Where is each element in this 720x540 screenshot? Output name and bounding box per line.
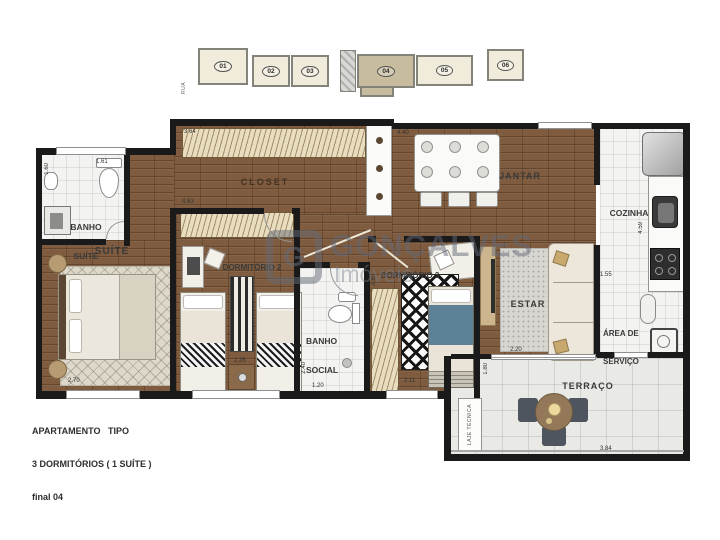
shower-drain (342, 358, 352, 368)
window-dorm3 (386, 390, 438, 399)
window-banho-suite (56, 147, 126, 155)
unit-number-badge: 06 (497, 60, 514, 71)
key-plan-unit-03: 03 (291, 55, 329, 87)
place-setting (477, 166, 489, 178)
burner (668, 267, 676, 275)
fridge (642, 132, 686, 176)
wall-banho-social-right (364, 262, 370, 398)
wall-closet-link (170, 119, 176, 155)
hook-dot (376, 165, 383, 172)
dorm2-bed-left (180, 292, 226, 392)
bed-pillow (259, 295, 299, 309)
bed-pillow (69, 319, 82, 353)
dining-chair (448, 192, 470, 207)
unit-number-badge: 03 (301, 66, 318, 77)
wall-right (683, 123, 690, 461)
bed-pillow (69, 279, 82, 313)
laje-tecnica-box: LAJE TÉCNICA (458, 398, 482, 452)
bed-pattern-band (181, 343, 225, 367)
label-suite: SUÍTE (95, 246, 129, 258)
dim-suite: 2.70 (68, 378, 80, 384)
wall-top-closet (170, 119, 394, 126)
floor-plan-page: RUA 01 02 03 04 05 06 (0, 0, 720, 540)
label-estar: ESTAR (511, 299, 546, 309)
wall-cozinha-left-top (594, 123, 600, 185)
tv (491, 259, 495, 313)
unit-number-badge: 05 (436, 65, 453, 76)
place-setting (449, 166, 461, 178)
dim-banho-social-h: 1.20 (312, 383, 324, 389)
wall-dorm3-top-b (404, 236, 480, 242)
label-jantar: JANTAR (499, 171, 541, 181)
dorm3-bed (428, 286, 474, 388)
dim-cozinha-v: 4.59 (638, 222, 644, 234)
terrace-railing-line (451, 450, 684, 452)
label-line: SERVIÇO (603, 357, 639, 366)
dim-cozinha-h: 1.55 (600, 272, 612, 278)
shower-box (44, 206, 71, 235)
place-setting (421, 141, 433, 153)
closet-pillar (366, 124, 392, 216)
sliding-door-estar-terraco (491, 354, 596, 360)
dim-closet-bottom: 4.63 (182, 199, 194, 205)
dim-terraco-v: 1.80 (483, 363, 489, 375)
wall-suite-dorm2 (170, 208, 176, 398)
bed-blanket (119, 275, 155, 359)
dorm2-desk (182, 246, 204, 288)
burner (668, 254, 676, 262)
laptop (187, 257, 200, 275)
terrace-table (535, 393, 573, 431)
dim-closet-top: 3.64 (184, 129, 196, 135)
place-setting (421, 166, 433, 178)
bed-headboard (59, 275, 66, 359)
label-dormitorio2: DORMITÓRIO 2 (223, 263, 282, 272)
suite-bed (58, 274, 156, 360)
wall-terraco-bottom (444, 454, 690, 461)
wall-dorm3-right (474, 236, 480, 398)
suite-side-table (48, 254, 67, 273)
bed-foot-bench (429, 371, 473, 387)
key-plan-unit-05: 05 (416, 55, 473, 86)
wall-dorm2-right (294, 208, 300, 398)
wall-banho-suite-right (124, 148, 130, 246)
glass-line (492, 357, 597, 358)
dorm2-runner-rug (230, 276, 254, 352)
wall-cozinha-left-bottom (594, 245, 600, 357)
dim-dorm2: 2.35 (234, 358, 246, 364)
burner (655, 267, 663, 275)
dim-dorm3-h: 2.11 (404, 378, 415, 384)
floor-hall (128, 152, 174, 244)
sofa-cushion-line (553, 282, 593, 283)
kitchen-sink (652, 196, 678, 228)
dim-estar: 2.20 (510, 347, 522, 353)
bed-pillow (431, 289, 471, 303)
hook-dot (376, 137, 383, 144)
label-line: ÁREA DE (603, 329, 639, 338)
laje-tecnica-label: LAJE TÉCNICA (467, 404, 473, 445)
dorm2-nightstand (228, 364, 255, 390)
place-setting (477, 141, 489, 153)
window-dorm2 (192, 390, 280, 399)
label-banho-suite: BANHO SUÍTE (70, 203, 101, 281)
hook-dot (376, 193, 383, 200)
wall-left (36, 148, 42, 398)
table-plate (548, 403, 561, 416)
suite-side-table (48, 360, 67, 379)
bed-blanket (181, 311, 225, 343)
wall-area-terraco-right (648, 352, 690, 358)
throw-pillow (552, 250, 569, 267)
title-line-3: final 04 (32, 492, 152, 503)
unit-number-badge: 01 (214, 61, 231, 72)
wall-banho-social-top-a (300, 262, 330, 268)
label-line: BANHO (70, 223, 101, 233)
tank-basin (657, 335, 670, 348)
water-heater (640, 294, 656, 324)
wall-top-cozinha (596, 123, 688, 129)
unit-number-badge: 04 (377, 66, 394, 77)
label-cozinha: COZINHA (610, 209, 649, 219)
title-line-2: 3 DORMITÓRIOS ( 1 SUÍTE ) (32, 459, 152, 470)
closet-wardrobe (182, 128, 366, 158)
window-suite (66, 390, 140, 399)
dining-chair (420, 192, 442, 207)
stove (650, 248, 680, 280)
dim-banho-suite-w: 1.61 (96, 159, 108, 165)
tv-rack (480, 246, 496, 326)
wall-estar-terraco (451, 354, 491, 359)
sofa (548, 243, 594, 361)
label-closet: CLOSET (241, 177, 290, 187)
dim-dorm3-v: 2.80 (371, 274, 377, 286)
key-plan-unit-06: 06 (487, 49, 524, 81)
label-line: BANHO (306, 337, 338, 347)
burner (655, 254, 663, 262)
wall-terraco-left (444, 356, 451, 461)
dim-banho-social-v: 2.40 (301, 362, 307, 374)
shower-seat (50, 213, 63, 229)
throw-pillow (553, 338, 570, 354)
title-block: APARTAMENTO TIPO 3 DORMITÓRIOS ( 1 SUÍTE… (32, 404, 152, 525)
sofa-cushion-line (553, 322, 593, 323)
place-setting (449, 141, 461, 153)
bed-pillow (183, 295, 223, 309)
wall-closet-dorm2-a (176, 208, 264, 214)
key-plan-unit-04: 04 (357, 54, 415, 88)
bathroom-sink (44, 172, 58, 190)
sink-basin (658, 203, 674, 223)
dim-jantar: 4.40 (397, 130, 409, 136)
laundry-tank (650, 328, 678, 354)
label-area-servico: ÁREA DE SERVIÇO (603, 311, 639, 385)
dining-chair (476, 192, 498, 207)
dorm3-wardrobe (371, 288, 399, 392)
wall-dorm3-top-a (368, 236, 376, 242)
street-label: RUA (181, 52, 187, 94)
key-plan-unit-01: 01 (198, 48, 248, 85)
key-plan: RUA 01 02 03 04 05 06 (0, 0, 720, 110)
label-terraco: TERRAÇO (562, 381, 614, 391)
toilet-tank (352, 303, 360, 324)
dim-terraco-h: 3.84 (600, 446, 612, 452)
unit-number-badge: 02 (262, 66, 279, 77)
key-plan-unit-02: 02 (252, 55, 290, 87)
window-jantar (538, 122, 592, 129)
label-dormitorio3: DORMITÓRIO 3 (381, 271, 440, 280)
bed-blanket-blue (429, 305, 473, 345)
nightstand-lamp (238, 373, 247, 382)
dim-banho-suite-h: 1.60 (44, 163, 50, 175)
label-line: SOCIAL (306, 366, 338, 376)
table-item (546, 418, 552, 424)
key-plan-core (340, 50, 356, 92)
title-line-1: APARTAMENTO TIPO (32, 426, 152, 437)
